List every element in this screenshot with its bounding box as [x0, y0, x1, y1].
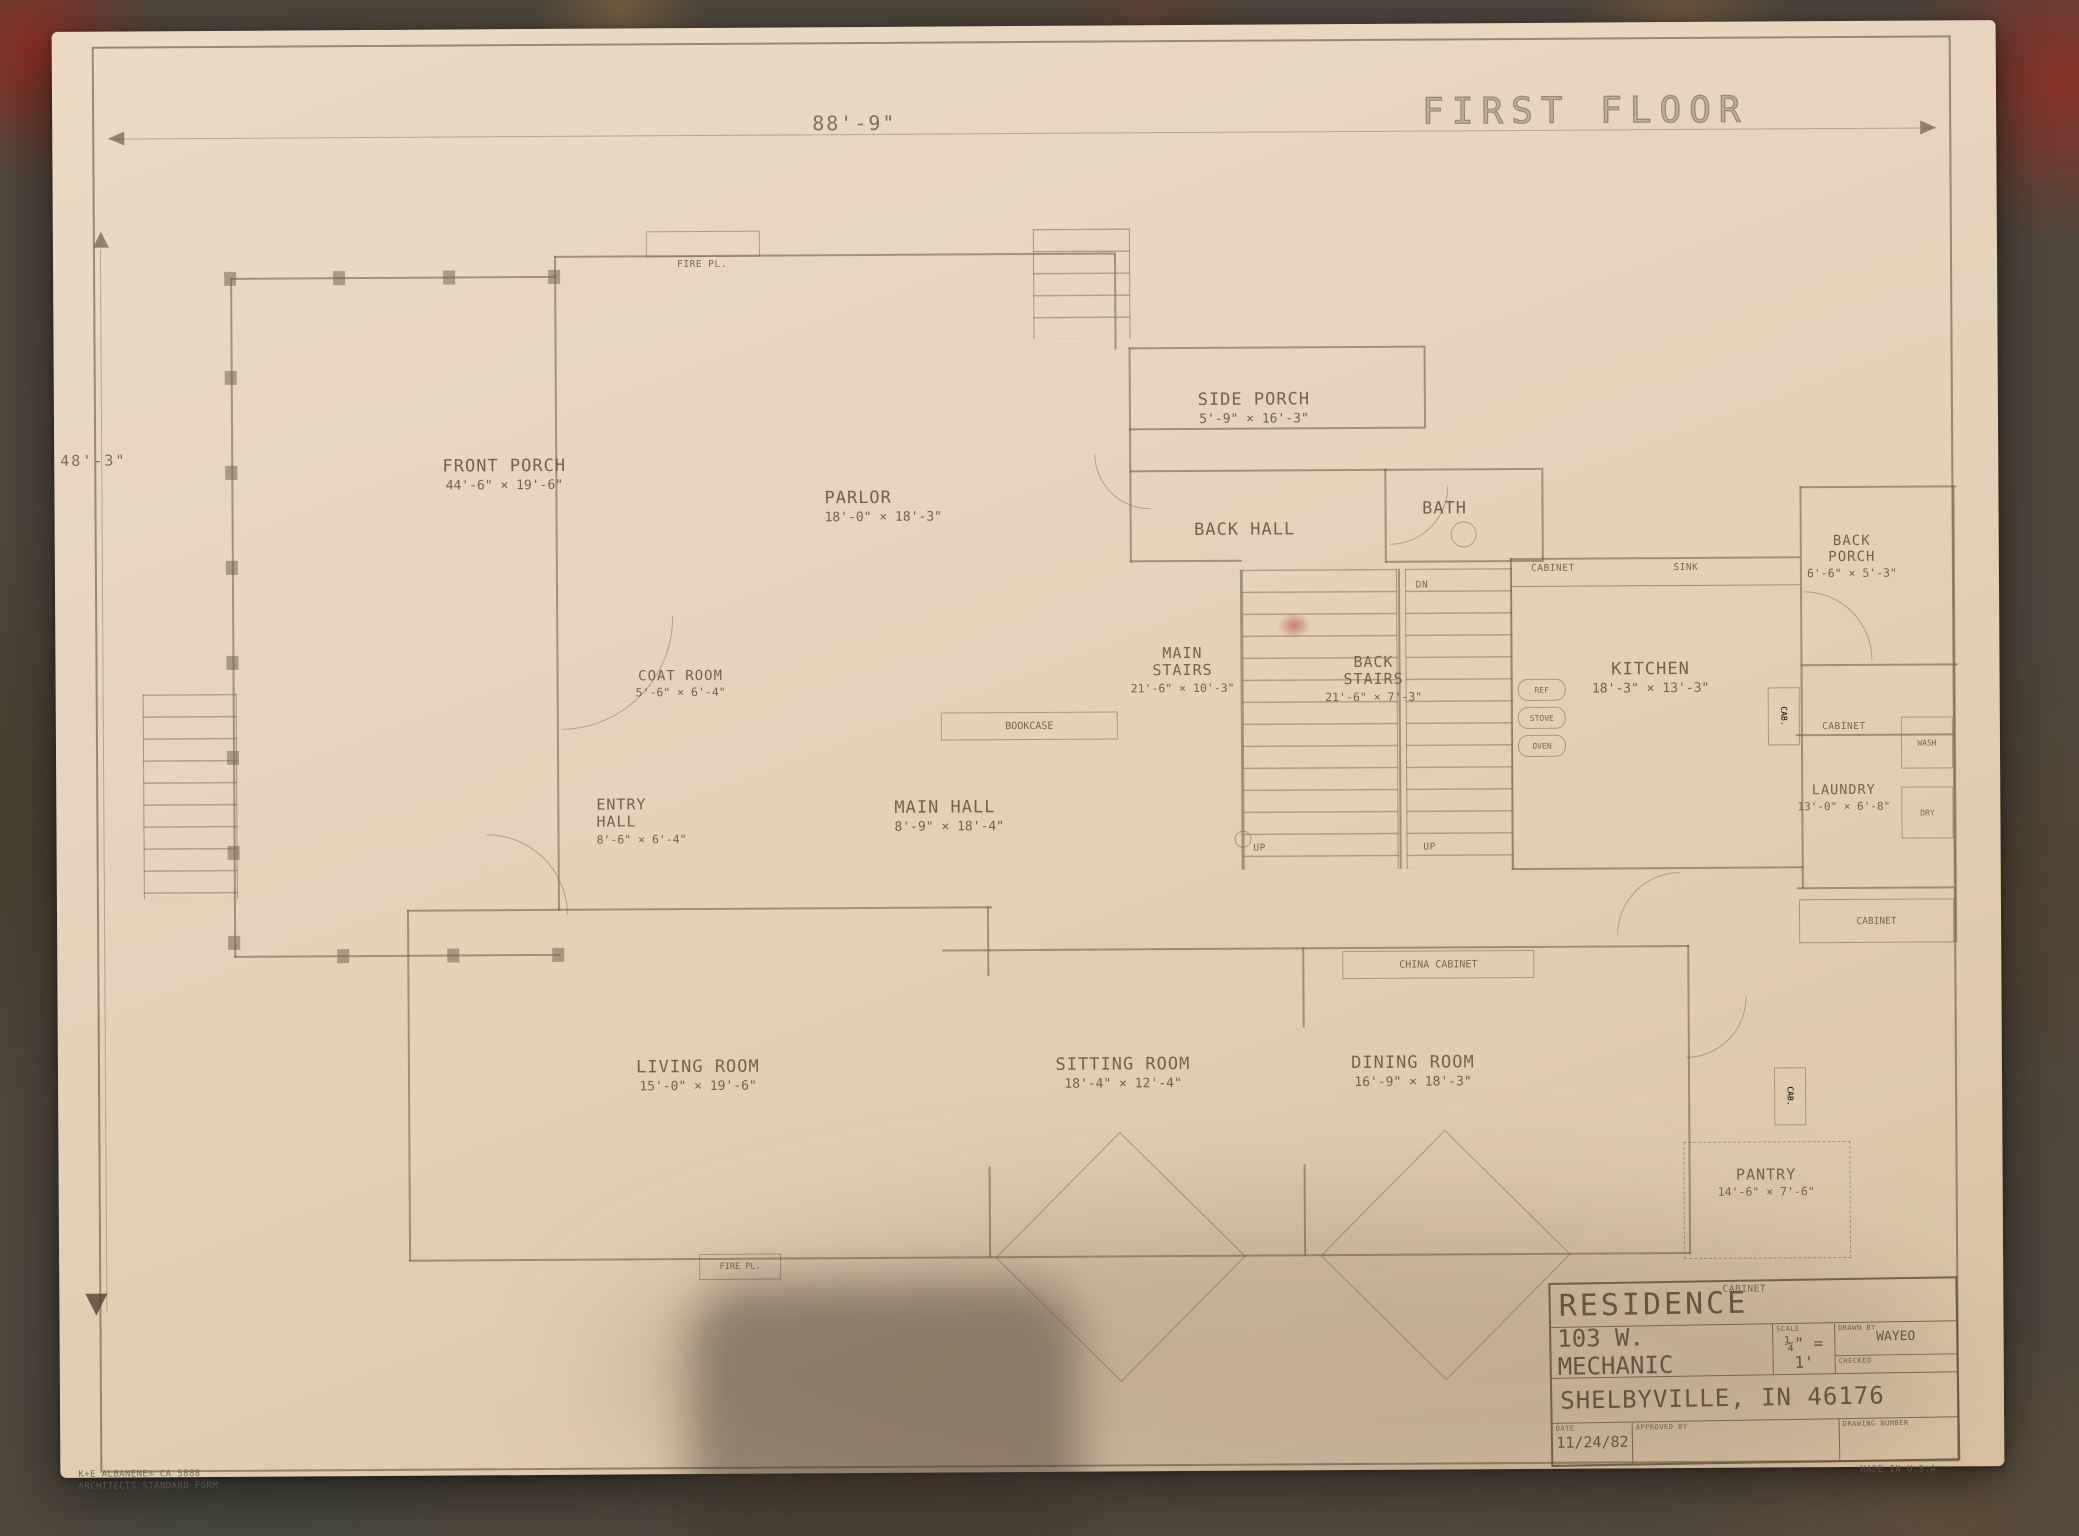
parlor-fireplace	[646, 231, 760, 258]
parlor-fireplace-label: FIRE PL.	[646, 259, 758, 271]
checked-label: CHECKED	[1836, 1354, 1957, 1366]
overall-width-dimension: 88'-9"	[812, 111, 896, 136]
room-label-back-porch: BACK PORCH6'-6" × 5'-3"	[1807, 533, 1897, 581]
scale-value: ¼" = 1'	[1773, 1333, 1835, 1372]
dimension-arrow-left-icon	[108, 132, 124, 146]
room-label-pantry: PANTRY14'-6" × 7'-6"	[1689, 1166, 1844, 1199]
drawn-by-cell: DRAWN BY WAYEO CHECKED	[1835, 1321, 1957, 1373]
made-in-usa-print: MADE IN U.S.A.	[1860, 1464, 1942, 1476]
title-block: RESIDENCE 103 W. MECHANIC SCALE ¼" = 1' …	[1548, 1276, 1960, 1467]
project-address: 103 W. MECHANIC	[1551, 1324, 1774, 1378]
room-label-sitting-room: SITTING ROOM18'-4" × 12'-4"	[1013, 1055, 1233, 1093]
blueprint-sheet: 88'-9" FIRST FLOOR 48'-3" FIRE PL. FIRE …	[52, 20, 2005, 1478]
floor-plan-walls	[52, 20, 1996, 32]
back-staircase	[1405, 568, 1514, 869]
kitchen-cabinet-label: CABINET	[1517, 563, 1589, 574]
date-cell: DATE 11/24/82	[1553, 1423, 1634, 1466]
title-block-project-row: RESIDENCE	[1550, 1278, 1956, 1328]
stove: STOVE	[1518, 707, 1566, 729]
room-label-parlor: PARLOR18'-0" × 18'-3"	[824, 488, 994, 526]
room-label-side-porch: SIDE PORCH5'-9" × 16'-3"	[1159, 390, 1349, 428]
room-label-entry-hall: ENTRY HALL8'-6" × 6'-4"	[596, 796, 691, 846]
drawing-number-label: DRAWING NUMBER	[1840, 1417, 1958, 1429]
room-label-coat-room: COAT ROOM5'-6" × 6'-4"	[631, 668, 731, 700]
bath-sink	[1451, 521, 1477, 547]
cabinet-tall-1: CAB.	[1768, 687, 1800, 745]
side-porch-steps	[1033, 228, 1131, 339]
title-block-address-row: 103 W. MECHANIC SCALE ¼" = 1' DRAWN BY W…	[1551, 1321, 1957, 1379]
manufacturer-line-2: ARCHITECTS STANDARD FORM	[78, 1481, 218, 1494]
scale-cell: SCALE ¼" = 1'	[1773, 1323, 1836, 1374]
drawing-number-cell: DRAWING NUMBER	[1840, 1417, 1959, 1461]
room-label-back-stairs: BACK STAIRS21'-6" × 7'-3"	[1323, 654, 1423, 704]
washer: WASH	[1901, 716, 1953, 768]
room-label-kitchen: KITCHEN18'-3" × 13'-3"	[1565, 660, 1735, 698]
cabinet-tall-2-label: CAB.	[1786, 1087, 1795, 1106]
title-block-approval-row: DATE 11/24/82 APPROVED BY DRAWING NUMBER	[1553, 1417, 1959, 1466]
dimension-arrow-up-icon	[93, 232, 109, 248]
manufacturer-line-1: K+E ALBANENE® CA 5888	[78, 1469, 218, 1482]
room-label-laundry: LAUNDRY13'-0" × 6'-8"	[1791, 783, 1896, 814]
front-exterior-steps	[143, 694, 238, 900]
laundry-cabinet-label: CABINET	[1804, 721, 1884, 732]
sheet-title: FIRST FLOOR	[1422, 90, 1749, 133]
room-label-dining-room: DINING ROOM16'-9" × 18'-3"	[1303, 1053, 1523, 1091]
manufacturer-print: K+E ALBANENE® CA 5888 ARCHITECTS STANDAR…	[78, 1469, 218, 1493]
cabinet-tall-1-label: CAB.	[1779, 707, 1788, 726]
living-room-fireplace: FIRE PL.	[699, 1254, 781, 1281]
back-stairs-dn-label: DN	[1407, 579, 1437, 590]
pantry-outline	[1683, 1141, 1851, 1259]
kitchen-sink-label: SINK	[1661, 562, 1711, 573]
room-label-main-hall: MAIN HALL8'-9" × 18'-4"	[894, 797, 1114, 835]
bookcase: BOOKCASE	[941, 711, 1118, 740]
oven: OVEN	[1518, 735, 1566, 757]
overall-height-dimension: 48'-3"	[60, 452, 126, 470]
project-city: SHELBYVILLE, IN 46176	[1552, 1381, 1885, 1415]
room-label-bath: BATH	[1399, 499, 1489, 519]
china-cabinet: CHINA CABINET	[1342, 950, 1534, 979]
room-label-back-hall: BACK HALL	[1165, 520, 1325, 541]
project-name: RESIDENCE	[1550, 1285, 1748, 1323]
main-stairs-up-label: UP	[1245, 842, 1275, 853]
dimension-arrow-down-icon	[85, 1294, 107, 1316]
date-value: 11/24/82	[1553, 1433, 1632, 1452]
dimension-arrow-right-icon	[1920, 120, 1936, 134]
back-stairs-up-label: UP	[1415, 841, 1445, 852]
main-staircase	[1242, 569, 1399, 870]
room-label-living-room: LIVING ROOM15'-0" × 19'-6"	[588, 1057, 808, 1095]
approved-by-cell: APPROVED BY	[1633, 1419, 1841, 1464]
room-label-front-porch: FRONT PORCH44'-6" × 19'-6"	[384, 456, 624, 494]
red-stamp-mark	[1277, 612, 1311, 638]
photo-scene: 88'-9" FIRST FLOOR 48'-3" FIRE PL. FIRE …	[0, 0, 2079, 1536]
approved-by-label: APPROVED BY	[1633, 1419, 1839, 1432]
cabinet-tall-2: CAB.	[1774, 1067, 1806, 1125]
title-block-city-row: SHELBYVILLE, IN 46176	[1552, 1372, 1958, 1424]
refrigerator: REF	[1518, 679, 1566, 701]
hall-cabinet: CABINET	[1799, 898, 1954, 943]
dryer: DRY	[1901, 786, 1953, 838]
room-label-main-stairs: MAIN STAIRS21'-6" × 10'-3"	[1127, 645, 1237, 695]
